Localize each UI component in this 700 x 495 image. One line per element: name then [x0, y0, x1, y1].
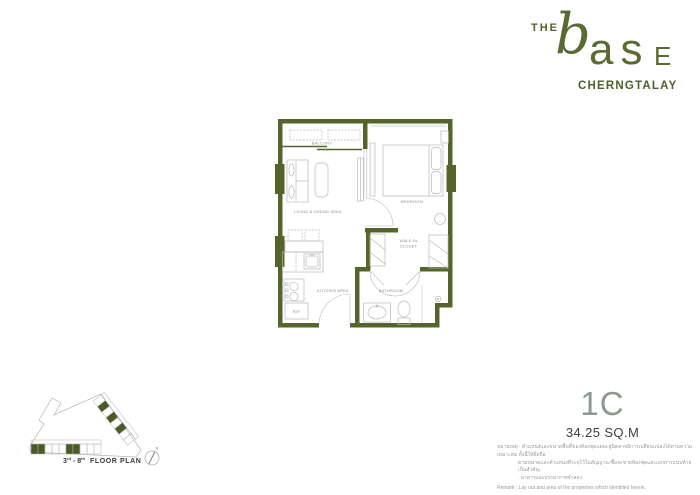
- balcony-label: BALCONY: [312, 141, 333, 146]
- disclaimer-thai-line2: ตามขนาดและตำแหน่งที่ระบุไว้ในสัญญาจะซื้อ…: [497, 460, 695, 476]
- brochure-page: THE b as E CHERNGTALAY: [0, 0, 700, 495]
- living-label: LIVING & DINING AREA: [294, 209, 342, 214]
- bedroom-window: [371, 125, 446, 127]
- unit-code: 1C: [500, 386, 700, 422]
- entry-door-arc: [319, 294, 350, 325]
- tv-cabinet: [358, 158, 364, 201]
- bedroom-door-arc: [365, 198, 393, 226]
- kitchen-label: KITCHEN AREA: [317, 288, 349, 293]
- stool: [435, 214, 446, 225]
- brand-letter-b: b: [555, 7, 591, 63]
- brand-letter-e: E: [654, 43, 671, 69]
- dining-set: [285, 230, 323, 252]
- sofa: [287, 160, 308, 202]
- bed: [383, 145, 443, 196]
- unit-area: 34.25 SQ.M: [500, 425, 700, 440]
- compass-north-label: N: [156, 446, 159, 451]
- disclaimer: หมายเหตุ : ตำแหน่งและขนาดพื้นที่ของห้องช…: [497, 444, 695, 493]
- brand-logo: THE b as E CHERNGTALAY: [528, 16, 693, 100]
- building-key-plan: 3rd-8thFLOOR PLAN N: [15, 385, 175, 485]
- tv-wall: [364, 149, 367, 198]
- disclaimer-thai-line1: หมายเหตุ : ตำแหน่งและขนาดพื้นที่ของห้องช…: [497, 444, 695, 460]
- balcony-units: [290, 130, 360, 140]
- bedside-shelf: [441, 131, 449, 143]
- disclaimer-thai-line3: : อาคารและบรรยากาศจำลอง: [497, 475, 695, 483]
- balcony-sliding-door: [282, 147, 362, 150]
- coffee-table: [315, 163, 328, 197]
- closet-label-line1: WALK-IN: [400, 238, 418, 243]
- ref-label: REF: [293, 310, 300, 314]
- shower-head: [435, 296, 441, 302]
- stove: [284, 279, 304, 301]
- bedroom-label: BEDROOM: [401, 199, 423, 204]
- bathroom-door-leaf-right: [406, 271, 420, 285]
- toilet: [398, 301, 410, 325]
- bedroom-wardrobe: [370, 143, 375, 196]
- keyplan-wing-horizontal: [31, 440, 101, 454]
- disclaimer-remark: Remark : Lay out and area of the propert…: [497, 485, 695, 493]
- brand-subtitle: CHERNGTALAY: [578, 80, 677, 92]
- unit-floor-plan: BALCONY LIVING & DINING AREA KITCHEN ARE…: [263, 110, 463, 338]
- closet-label-line2: CLOSET: [400, 244, 418, 249]
- compass-icon: N: [145, 446, 159, 466]
- unit-info: 1C 34.25 SQ.M: [500, 386, 700, 440]
- bathroom-door-leaf-left: [370, 271, 384, 285]
- floor-plan-label: 3rd-8thFLOOR PLAN: [63, 456, 141, 465]
- bathroom-label: BATHROOM: [379, 288, 403, 293]
- kitchen-counter: [283, 252, 324, 272]
- bathroom-sink: [364, 303, 391, 322]
- brand-letters-as: as: [589, 28, 649, 72]
